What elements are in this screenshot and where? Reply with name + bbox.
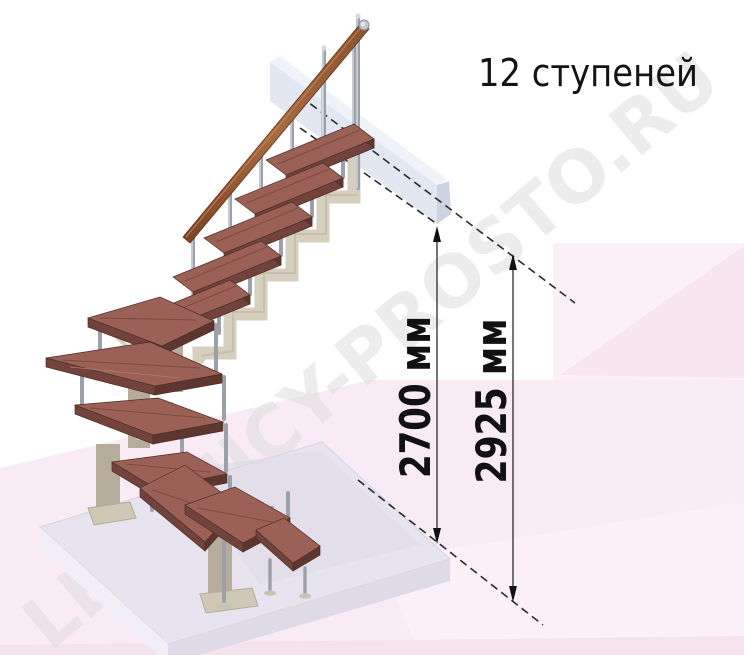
support-column-left (96, 444, 120, 512)
dimension-label-2700: 2700 мм (391, 316, 440, 478)
handrail-end-cap-shine (361, 22, 365, 26)
rod-cap (321, 45, 326, 50)
steps-count-label: 12 ступеней (478, 51, 698, 95)
staircase-diagram-page: LESTNICY-PROSTO.RU (0, 0, 744, 655)
rod-base-disc (299, 593, 311, 598)
dimension-label-2925: 2925 мм (467, 319, 516, 484)
rod-base-disc (264, 590, 276, 595)
rod-cap (355, 13, 360, 18)
staircase-diagram: LESTNICY-PROSTO.RU (0, 0, 744, 655)
rod-base-disc (216, 603, 232, 610)
